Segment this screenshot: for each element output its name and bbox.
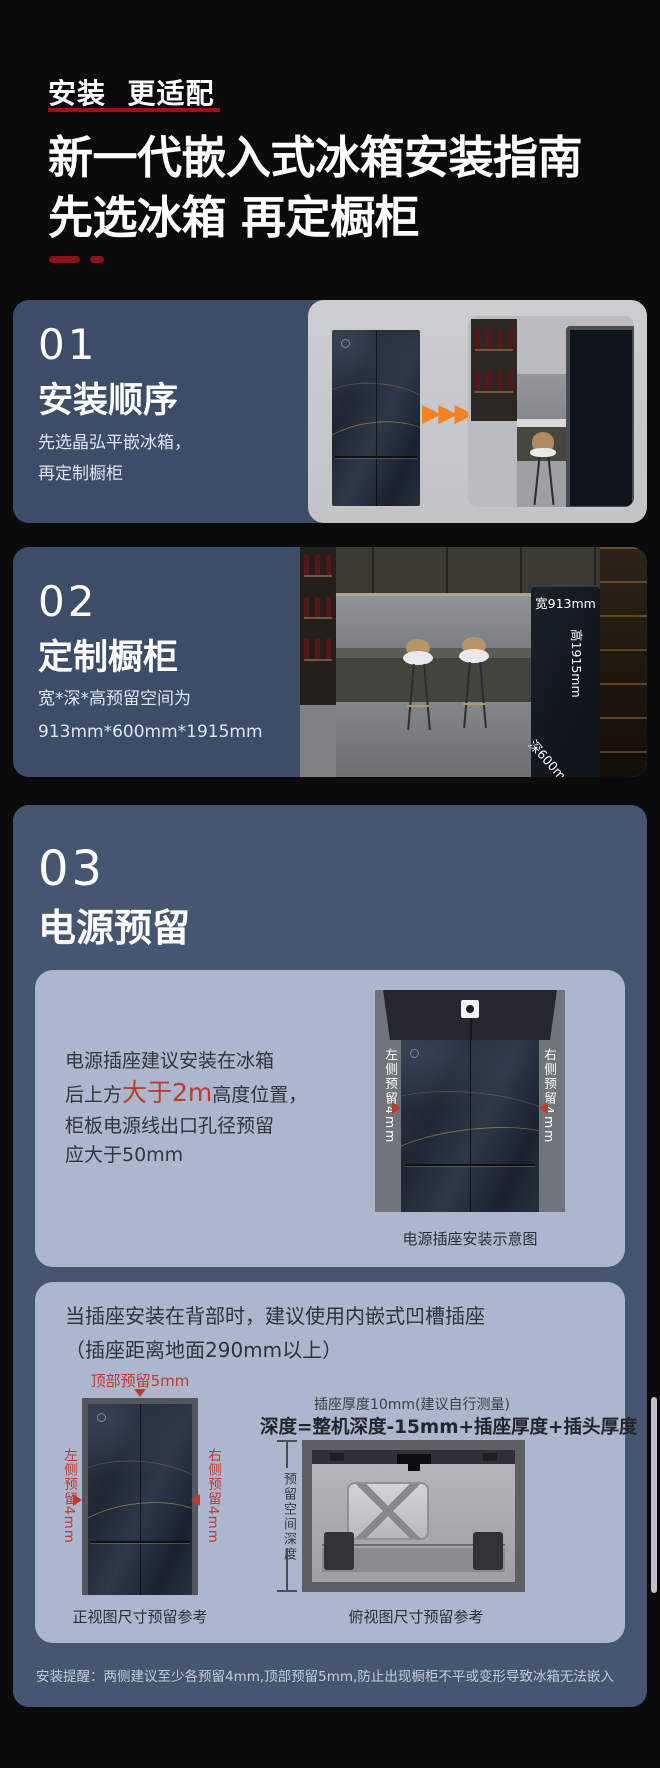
right-gap-label: 右侧预留4mm <box>203 1448 223 1544</box>
power-cord <box>470 1018 472 1042</box>
depth-space-label: 预留空间深度 <box>279 1472 298 1562</box>
height-dimension-label: 高1915mm <box>568 629 587 698</box>
fridge-front <box>401 1040 539 1212</box>
section-01-body: 先选晶弘平嵌冰箱， 再定制橱柜 <box>38 428 191 490</box>
right-gap-label: 右侧预留4mm <box>540 1048 559 1144</box>
dimension-line <box>286 1442 288 1468</box>
recessed-line2: （插座距离地面290mm以上） <box>65 1334 342 1363</box>
power-socket-text: 电源插座建议安装在冰箱 后上方大于2m高度位置， 柜板电源线出口孔径预留 应大于… <box>65 1046 307 1170</box>
forward-arrows-icon: ▶▶▶ <box>422 398 471 427</box>
arrow-marker-right-icon <box>73 1494 82 1506</box>
section-02-photo: 宽913mm 高1915mm 深600mm <box>300 547 647 777</box>
fridge-photo <box>332 330 420 506</box>
socket-thickness-note: 插座厚度10mm(建议自行测量) <box>302 1394 522 1414</box>
bar-stool-seat <box>403 651 433 665</box>
eyebrow-title: 安装 更适配 <box>48 72 215 112</box>
page-title: 新一代嵌入式冰箱安装指南 先选冰箱 再定橱柜 <box>48 128 582 248</box>
kitchen-photo <box>468 316 634 507</box>
bar-stool-seat <box>530 448 556 457</box>
section-02-number: 02 <box>38 577 97 626</box>
section-03-number: 03 <box>38 841 105 897</box>
display-shelf <box>600 547 647 777</box>
section-01-card: 01 安装顺序 先选晶弘平嵌冰箱， 再定制橱柜 ▶▶▶ <box>13 300 647 523</box>
text-line1: 电源插座建议安装在冰箱 <box>65 1046 307 1076</box>
plug-icon <box>408 1464 420 1471</box>
section-02-body-line1: 宽*深*高预留空间为 <box>38 683 263 716</box>
section-01-number: 01 <box>38 320 97 369</box>
wine-cabinet <box>471 319 517 421</box>
arrow-marker-left-icon <box>191 1494 200 1506</box>
section-02-body: 宽*深*高预留空间为 913mm*600mm*1915mm <box>38 683 263 749</box>
top-view-illustration <box>302 1440 525 1592</box>
left-gap-label: 左侧预留4mm <box>381 1048 400 1144</box>
illustration-caption: 电源插座安装示意图 <box>370 1228 570 1249</box>
decor-dash-long <box>49 256 80 263</box>
hinge-bracket <box>324 1532 354 1570</box>
section-01-body-line1: 先选晶弘平嵌冰箱， <box>38 428 191 459</box>
dimension-cap-bottom <box>277 1590 297 1592</box>
text-line3: 柜板电源线出口孔径预留 <box>65 1112 307 1141</box>
power-socket-icon <box>461 1000 479 1018</box>
bar-stool-seat <box>459 649 489 663</box>
dimension-line <box>286 1548 288 1590</box>
recessed-socket-card: 当插座安装在背部时，建议使用内嵌式凹槽插座 （插座距离地面290mm以上） 顶部… <box>35 1282 625 1643</box>
front-view-caption: 正视图尺寸预留参考 <box>40 1606 240 1627</box>
section-02-body-line2: 913mm*600mm*1915mm <box>38 716 263 749</box>
embedded-fridge-column: 宽913mm 高1915mm 深600mm <box>531 585 600 777</box>
front-view-illustration <box>82 1398 198 1595</box>
section-02-heading: 定制橱柜 <box>38 629 178 680</box>
poster-page: 安装 更适配 新一代嵌入式冰箱安装指南 先选冰箱 再定橱柜 01 安装顺序 先选… <box>0 0 660 1768</box>
power-socket-card: 电源插座建议安装在冰箱 后上方大于2m高度位置， 柜板电源线出口孔径预留 应大于… <box>35 970 625 1267</box>
install-reminder-note: 安装提醒：两侧建议至少各预留4mm,顶部预留5mm,防止出现橱柜不平或变形导致冰… <box>36 1665 614 1685</box>
section-01-heading: 安装顺序 <box>38 372 178 423</box>
arrow-marker-left-icon <box>539 1102 548 1114</box>
fridge-front <box>88 1404 192 1595</box>
depth-formula: 深度=整机深度-15mm+插座厚度+插头厚度 <box>260 1413 570 1439</box>
section-01-image: ▶▶▶ <box>308 300 647 523</box>
scrollbar-thumb[interactable] <box>651 1397 657 1593</box>
height-requirement-highlight: 大于2m <box>122 1078 212 1107</box>
dark-doorway <box>566 326 634 507</box>
page-title-line1: 新一代嵌入式冰箱安装指南 <box>48 128 582 188</box>
decor-dash-short <box>90 256 104 263</box>
reserved-space-floor <box>312 1450 515 1582</box>
section-03-heading: 电源预留 <box>38 897 190 952</box>
wine-shelf <box>300 547 336 705</box>
section-02-card: 02 定制橱柜 宽*深*高预留空间为 913mm*600mm*1915mm <box>13 547 647 777</box>
hinge-bracket <box>473 1532 503 1570</box>
depth-dimension-label: 深600mm <box>525 735 580 777</box>
brand-logo-icon <box>341 339 350 348</box>
eyebrow-underline <box>48 108 220 112</box>
section-01-body-line2: 再定制橱柜 <box>38 459 191 490</box>
page-title-line2: 先选冰箱 再定橱柜 <box>48 188 582 248</box>
socket-install-illustration: 左侧预留4mm 右侧预留4mm <box>375 990 565 1212</box>
brand-logo-icon <box>410 1049 419 1058</box>
top-view-caption: 俯视图尺寸预留参考 <box>316 1606 516 1627</box>
top-gap-label: 顶部预留5mm <box>40 1370 240 1391</box>
recessed-socket-plate <box>347 1482 429 1540</box>
brand-logo-icon <box>97 1413 106 1422</box>
text-line4: 应大于50mm <box>65 1141 307 1170</box>
arrow-marker-right-icon <box>392 1102 401 1114</box>
arrow-marker-down-icon <box>134 1389 146 1397</box>
plug-icon <box>397 1454 431 1464</box>
text-line2: 后上方大于2m高度位置， <box>65 1076 307 1112</box>
section-03-card: 03 电源预留 电源插座建议安装在冰箱 后上方大于2m高度位置， 柜板电源线出口… <box>13 805 647 1707</box>
recessed-line1: 当插座安装在背部时，建议使用内嵌式凹槽插座 <box>65 1300 485 1329</box>
width-dimension-label: 宽913mm <box>531 593 600 612</box>
